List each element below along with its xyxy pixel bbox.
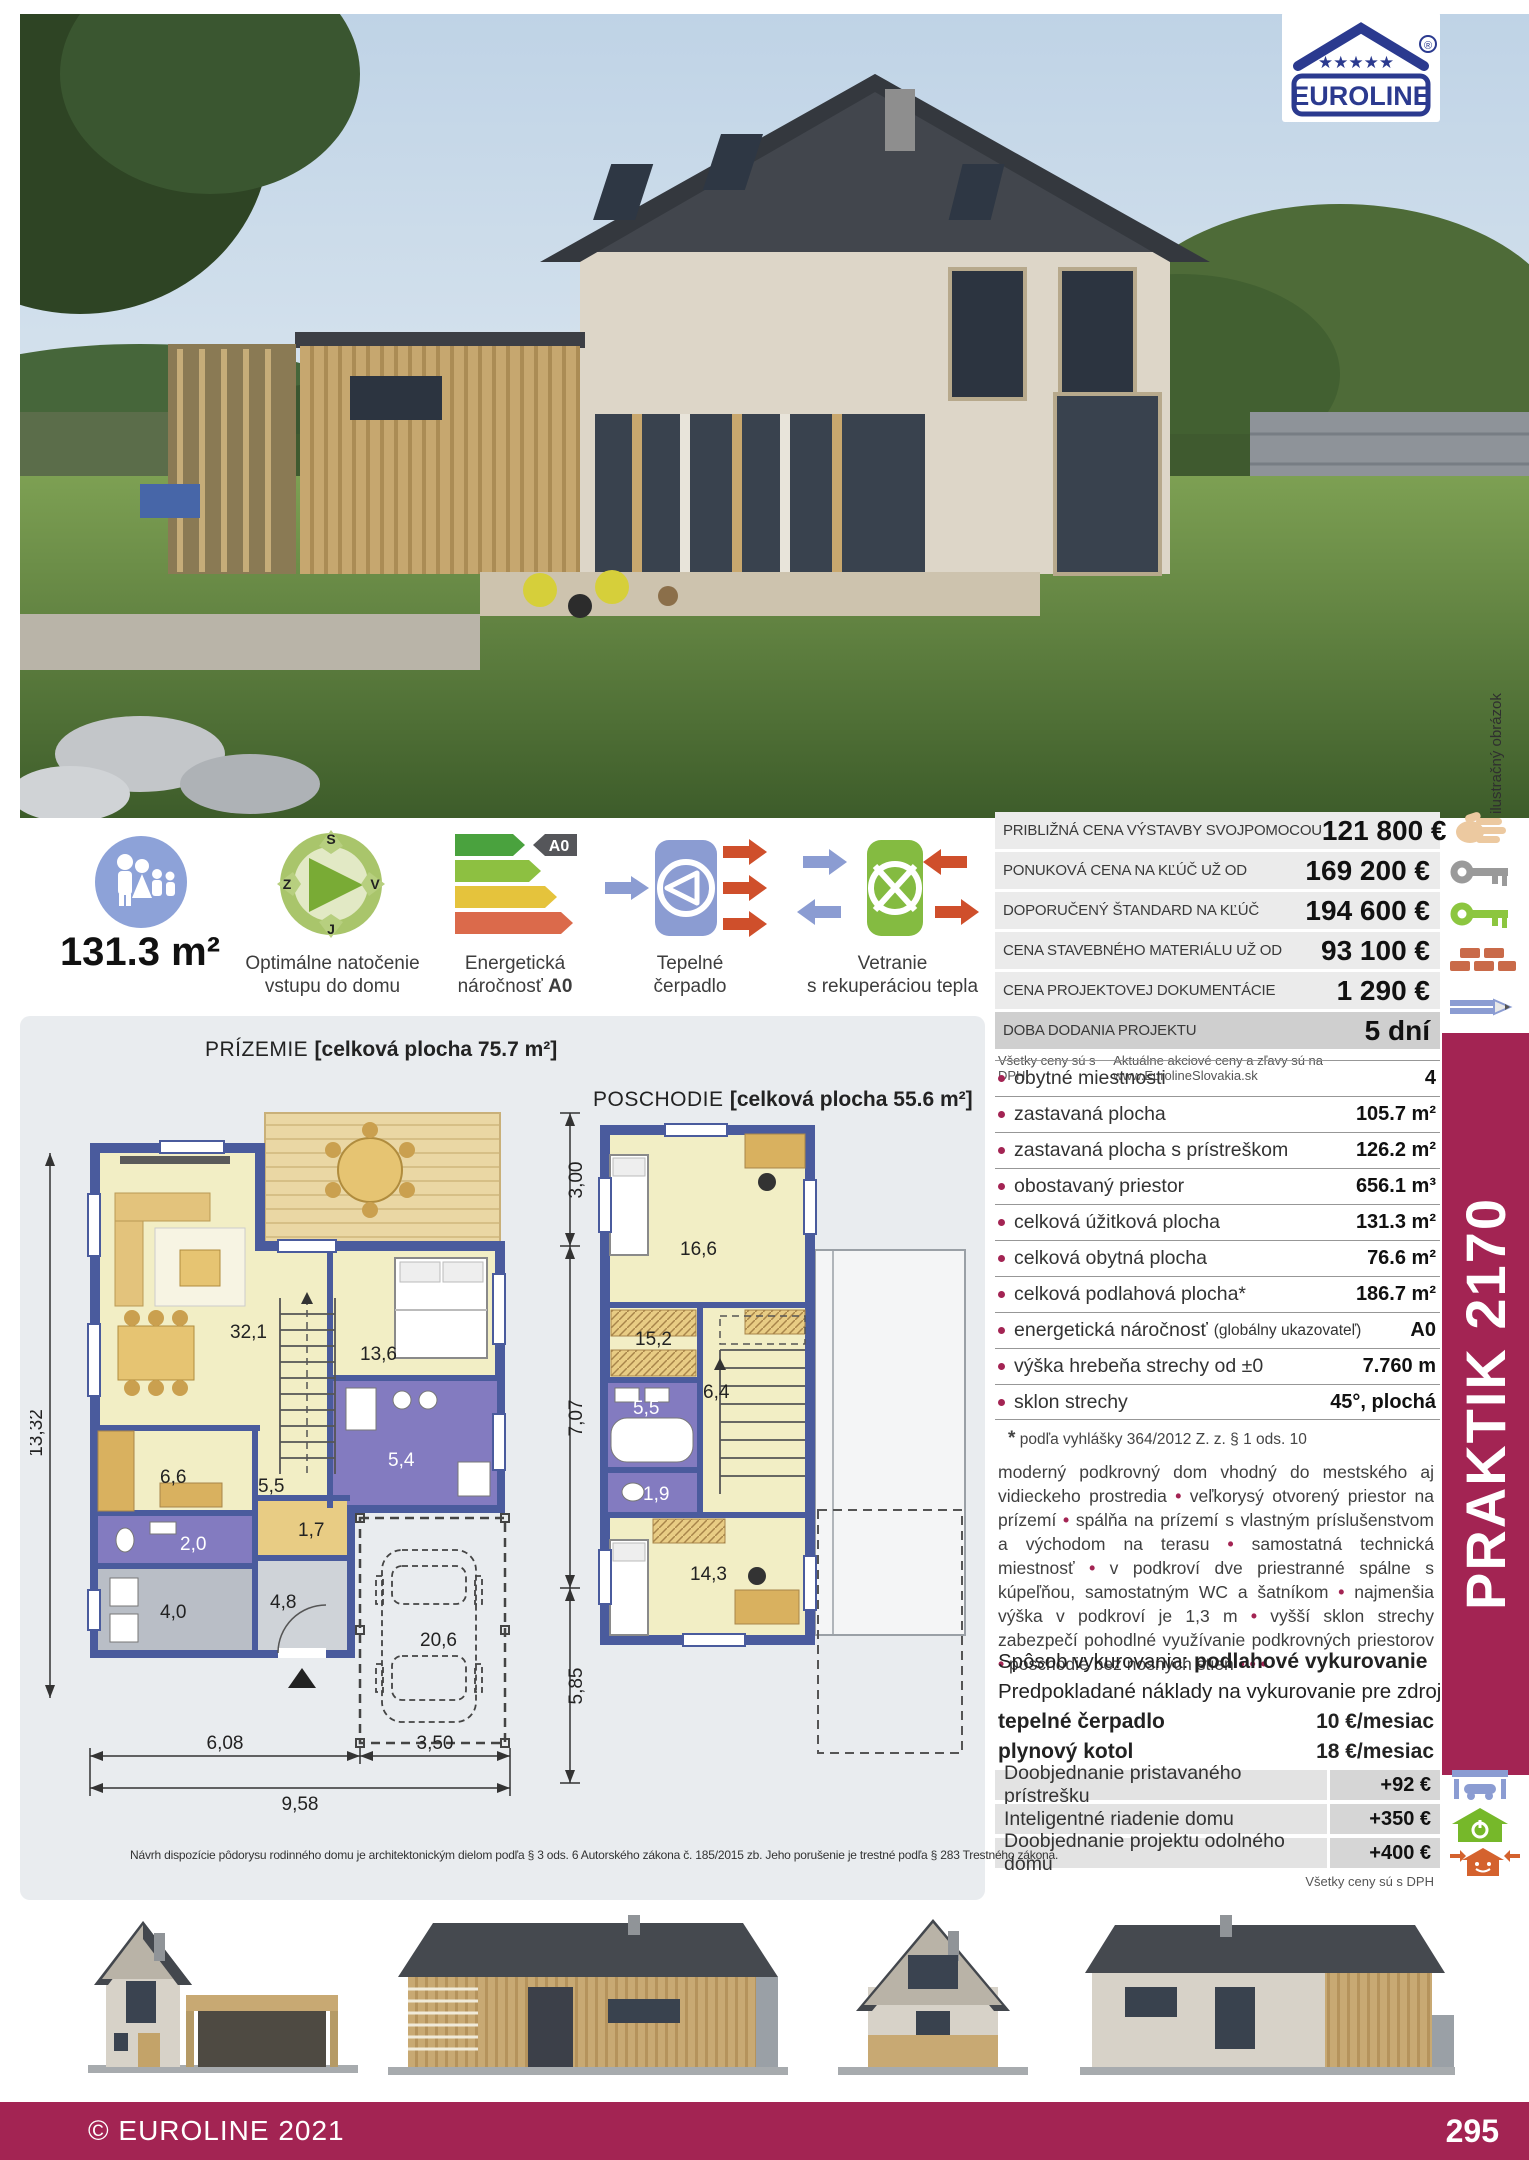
room-hall-upper: 6,4 [703, 1382, 730, 1403]
spec-footnote: * podľa vyhlášky 364/2012 Z. z. § 1 ods.… [1008, 1428, 1307, 1450]
room-bedroom1: 16,6 [680, 1239, 717, 1260]
energy-label: Energetická náročnosť A0 [425, 952, 605, 998]
spec-row: zastavaná plocha s prístreškom126.2 m² [995, 1132, 1440, 1168]
dim-bottom-total: 9,58 [282, 1794, 319, 1815]
spec-row: zastavaná plocha105.7 m² [995, 1096, 1440, 1132]
price-row-delivery: DOBA DODANIA PROJEKTU 5 dní [995, 1012, 1440, 1049]
spec-row: sklon strechy45°, plochá [995, 1384, 1440, 1420]
svg-text:A0: A0 [549, 838, 570, 855]
room-kitchen: 6,6 [160, 1467, 186, 1488]
price-row: CENA PROJEKTOVEJ DOKUMENTÁCIE 1 290 € [995, 972, 1440, 1009]
model-name-banner: PRAKTIK 2170 [1442, 1033, 1529, 1775]
dim-right-top: 3,00 [566, 1162, 587, 1199]
bullet-icon [998, 1291, 1005, 1298]
upper-floor-heading: POSCHODIE [celková plocha 55.6 m²] [593, 1088, 973, 1112]
bullet-icon [998, 1183, 1005, 1190]
compass-e: V [370, 876, 380, 892]
bullet-icon [998, 1399, 1005, 1406]
spec-row: energetická náročnosť(globálny ukazovate… [995, 1312, 1440, 1348]
room-wc-upper: 1,9 [643, 1484, 669, 1505]
option-label: Doobjednanie pristavaného prístrešku [995, 1770, 1327, 1800]
energy-label-icon: A0 [455, 832, 580, 937]
logo-wordmark: EUROLINE [1291, 81, 1431, 111]
heat-pump-label: Tepelnéčerpadlo [610, 952, 770, 998]
euroline-logo: ★★★★★ ® EUROLINE [1282, 12, 1440, 122]
heating-method-line: Spôsob vykurovania: podlahové vykurovani… [998, 1650, 1434, 1674]
heating-cost-row: tepelné čerpadlo10 €/mesiac [998, 1710, 1434, 1734]
ground-floor-plan: 32,1 13,6 6,6 5,5 2,0 4,0 1,7 4,8 5,4 20… [30, 1098, 610, 1823]
page-number: 295 [1446, 2113, 1499, 2150]
price-row: DOPORUČENÝ ŠTANDARD NA KĽÚČ 194 600 € [995, 892, 1440, 929]
house-photo-illustration [20, 14, 1529, 818]
elevation-side-right [378, 1915, 798, 2095]
heating-costs-intro: Predpokladané náklady na vykurovanie pre… [998, 1680, 1434, 1704]
option-price: +400 € [1330, 1838, 1440, 1868]
euroline-logo-graphic: ★★★★★ ® EUROLINE [1282, 12, 1440, 122]
bricks-icon [1450, 948, 1516, 971]
logo-registered: ® [1424, 40, 1432, 52]
room-wc: 2,0 [180, 1534, 206, 1555]
price-row: PONUKOVÁ CENA NA KĽÚČ UŽ OD 169 200 € [995, 852, 1440, 889]
heat-pump-icon [605, 838, 775, 938]
key-green-icon [1454, 906, 1508, 928]
compass-label: Optimálne natočenievstupu do domu [235, 952, 430, 998]
elevation-rear-gable [828, 1915, 1038, 2095]
dim-bottom-left: 6,08 [207, 1733, 244, 1754]
dim-bottom-right: 3,50 [417, 1733, 454, 1754]
carport-icon [1452, 1770, 1508, 1800]
room-hall: 5,5 [258, 1476, 284, 1497]
spec-row: celková úžitková plocha131.3 m² [995, 1204, 1440, 1240]
elevation-front [88, 1915, 368, 2095]
spec-row: celková obytná plocha76.6 m² [995, 1240, 1440, 1276]
logo-stars: ★★★★★ [1318, 53, 1394, 72]
spec-row: výška hrebeňa strechy od ±07.760 m [995, 1348, 1440, 1384]
description-text: moderný podkrovný dom vhodný do mestskéh… [998, 1460, 1434, 1676]
room-living: 32,1 [230, 1322, 267, 1343]
option-price: +92 € [1330, 1770, 1440, 1800]
options-vat-note: Všetky ceny sú s DPH [995, 1874, 1440, 1889]
smart-home-icon [1452, 1808, 1508, 1842]
price-row: PRIBLIŽNÁ CENA VÝSTAVBY SVOJPOMOCOU 121 … [995, 812, 1440, 849]
bullet-icon [998, 1075, 1005, 1082]
catalog-page: ★★★★★ ® EUROLINE ilustračný obrázok 131.… [0, 0, 1529, 2160]
bullet-icon [998, 1219, 1005, 1226]
family-icon [95, 836, 187, 928]
bullet-icon [998, 1363, 1005, 1370]
room-closet: 1,7 [298, 1520, 324, 1541]
compass-icon: S V J Z [275, 828, 387, 940]
ventilation-label: Vetranies rekuperáciou tepla [770, 952, 1015, 998]
pencil-icon [1450, 1000, 1510, 1014]
bullet-icon [998, 1255, 1005, 1262]
spec-row: obostavaný priestor656.1 m³ [995, 1168, 1440, 1204]
dim-left: 13,32 [30, 1409, 47, 1457]
resilient-home-icon [1450, 1848, 1520, 1876]
room-carport: 20,6 [420, 1630, 457, 1651]
compass-n: S [326, 831, 335, 847]
room-bedroom: 13,6 [360, 1344, 397, 1365]
room-bedroom2: 14,3 [690, 1564, 727, 1585]
spec-row: obytné miestnosti4 [995, 1060, 1440, 1096]
key-gray-icon [1454, 864, 1508, 886]
terrace-chair [523, 573, 557, 607]
elevation-side-left [1070, 1915, 1460, 2095]
heating-cost-row: plynový kotol18 €/mesiac [998, 1740, 1434, 1764]
model-name: PRAKTIK 2170 [1453, 1197, 1518, 1610]
house-photo: ★★★★★ ® EUROLINE ilustračný obrázok [20, 14, 1529, 818]
compass-w: Z [283, 876, 292, 892]
option-price: +350 € [1330, 1804, 1440, 1834]
room-bath-upper: 5,5 [633, 1398, 659, 1419]
upper-floor-plan: 16,6 15,2 5,5 6,4 1,9 14,3 [595, 1120, 985, 1775]
copyright-disclaimer: Návrh dispozície pôdorysu rodinného domu… [130, 1848, 990, 1862]
spec-table: obytné miestnosti4 zastavaná plocha105.7… [995, 1060, 1440, 1420]
ground-floor-heading: PRÍZEMIE [celková plocha 75.7 m²] [205, 1038, 557, 1062]
dim-right-bottom: 5,85 [566, 1668, 587, 1705]
room-tech: 4,0 [160, 1602, 186, 1623]
room-bath: 5,4 [388, 1450, 415, 1471]
hand-icon [1456, 811, 1506, 843]
spec-row: celková podlahová plocha*186.7 m² [995, 1276, 1440, 1312]
footer-bar: © EUROLINE 2021 295 [0, 2102, 1529, 2160]
photo-note: ilustračný obrázok [1488, 594, 1505, 814]
dim-right-mid: 7,07 [566, 1400, 587, 1437]
price-row: CENA STAVEBNÉHO MATERIÁLU UŽ OD 93 100 € [995, 932, 1440, 969]
room-entry: 4,8 [270, 1592, 296, 1613]
total-area: 131.3 m² [30, 930, 250, 975]
terrace-chair [595, 570, 629, 604]
room-wardrobe: 15,2 [635, 1329, 672, 1350]
footer-copyright: © EUROLINE 2021 [88, 2115, 345, 2147]
ventilation-icon [795, 838, 990, 938]
option-icon-column [1450, 1768, 1520, 1883]
energy-a0-badge: A0 [533, 834, 577, 856]
bullet-icon [998, 1147, 1005, 1154]
bullet-icon [998, 1111, 1005, 1118]
bullet-icon [998, 1327, 1005, 1334]
compass-s: J [327, 921, 335, 937]
